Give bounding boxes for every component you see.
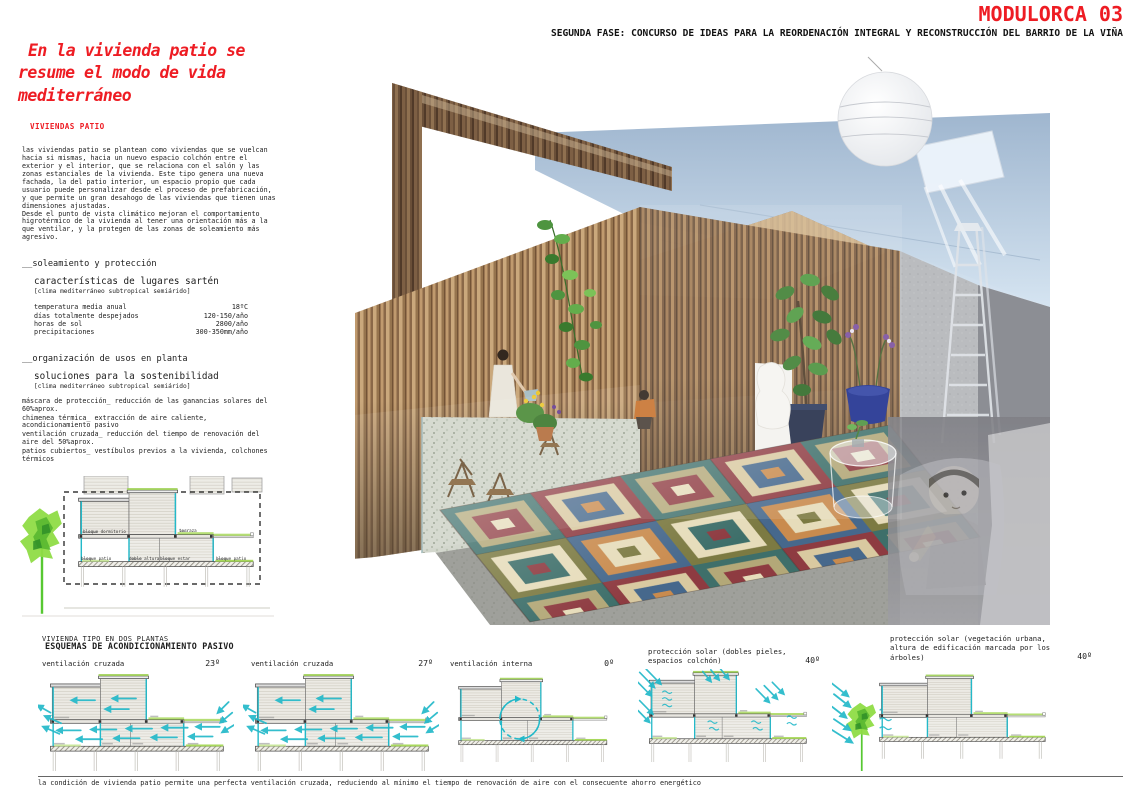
list-item: máscara de protección_ reducción de las …: [22, 398, 278, 414]
label-bloque-patio: bloque patio: [81, 556, 112, 561]
stat-row: temperatura media anual18ºC: [34, 303, 248, 311]
label-bloque-patio-2: bloque patio: [216, 556, 247, 561]
intro-paragraph-1: las viviendas patio se plantean como viv…: [22, 147, 276, 210]
list-item: chimenea térmica_ extracción de aire cal…: [22, 415, 278, 431]
scheme-diagram: [243, 672, 439, 771]
organizacion-subtitle: soluciones para la sostenibilidad: [34, 371, 288, 382]
scheme-proteccion-solar-vegetacion: protección solar (vegetación urbana, alt…: [832, 634, 1092, 771]
stat-value: 2800/año: [216, 320, 248, 328]
list-item: ventilación cruzada_ reducción del tiemp…: [22, 431, 278, 447]
section-diagram-svg: bloque dormitorio terraza bloque patio d…: [18, 476, 278, 626]
tree-icon: [846, 703, 876, 771]
soleamiento-title: __soleamiento y protección: [22, 259, 288, 269]
stat-label: horas de sol: [34, 320, 82, 328]
intro-paragraph-2: Desde el punto de vista climático mejora…: [22, 211, 276, 243]
building-section: [79, 488, 254, 587]
page-subtitle: SEGUNDA FASE: CONCURSO DE IDEAS PARA LA …: [551, 28, 1123, 39]
stat-label: temperatura media anual: [34, 303, 127, 311]
list-item: patios cubiertos_ vestíbulos previos a l…: [22, 448, 278, 464]
label-doble-altura: doble altura: [129, 556, 160, 561]
scheme-proteccion-solar-pieles: protección solar (dobles pieles, espacio…: [638, 647, 820, 762]
scheme-label: protección solar (dobles pieles, espacio…: [648, 647, 788, 666]
collage-svg: [340, 55, 1060, 625]
intro-paragraphs: las viviendas patio se plantean como viv…: [22, 147, 276, 242]
schemes-title: ESQUEMAS DE ACONDICIONAMIENTO PASIVO: [45, 641, 234, 651]
headline: En la vivienda patio se resume el modo d…: [18, 40, 288, 107]
soleamiento-subtitle: características de lugares sartén: [34, 276, 288, 287]
scheme-diagram: [448, 676, 616, 762]
scheme-label: ventilación cruzada: [42, 659, 124, 668]
stat-row: días totalmente despejados120-150/año: [34, 312, 248, 320]
section-diagram: bloque dormitorio terraza bloque patio d…: [18, 476, 288, 643]
label-bloque-estar: bloque estar: [160, 556, 191, 561]
stat-value: 18ºC: [232, 303, 248, 311]
scheme-angle: 0º: [604, 658, 614, 669]
scheme-label: ventilación interna: [450, 659, 532, 668]
schemes-footnote: la condición de vivienda patio permite u…: [38, 776, 1123, 787]
stat-value: 120-150/año: [204, 312, 248, 320]
scheme-angle: 40º: [1077, 651, 1092, 662]
scheme-diagram: [832, 671, 1080, 771]
label-terraza: terraza: [179, 528, 197, 533]
scheme-angle: 27º: [418, 658, 433, 669]
left-column: En la vivienda patio se resume el modo d…: [18, 40, 288, 643]
patio-photomontage: [340, 55, 1060, 625]
page-title: MODULORCA 03: [979, 2, 1124, 26]
climate-stats: temperatura media anual18ºC días totalme…: [34, 303, 248, 337]
organizacion-note: [clima mediterráneo subtropical semiárid…: [34, 383, 288, 390]
scheme-ventilacion-cruzada-23: ventilación cruzada23º: [38, 658, 234, 771]
scheme-diagram: [638, 669, 816, 762]
scheme-ventilacion-interna: ventilación interna0º: [448, 658, 616, 762]
stat-row: horas de sol2800/año: [34, 320, 248, 328]
sustainability-items: máscara de protección_ reducción de las …: [22, 398, 278, 464]
organizacion-title: __organización de usos en planta: [22, 354, 288, 364]
stat-label: precipitaciones: [34, 328, 94, 336]
scheme-ventilacion-cruzada-27: ventilación cruzada27º: [243, 658, 439, 771]
scheme-angle: 23º: [205, 658, 220, 669]
scheme-angle: 40º: [805, 655, 820, 666]
stat-label: días totalmente despejados: [34, 312, 139, 320]
scheme-label: ventilación cruzada: [251, 659, 333, 668]
tree-icon: [20, 508, 62, 614]
section-label: VIVIENDAS PATIO: [30, 122, 288, 131]
scheme-diagram: [38, 672, 234, 771]
competition-board: MODULORCA 03 SEGUNDA FASE: CONCURSO DE I…: [0, 0, 1131, 800]
label-bloque-dormitorio: bloque dormitorio: [83, 529, 126, 534]
stat-value: 300-350mm/año: [196, 328, 248, 336]
soleamiento-note: [clima mediterráneo subtropical semiárid…: [34, 288, 288, 295]
scheme-label: protección solar (vegetación urbana, alt…: [890, 634, 1058, 662]
stat-row: precipitaciones300-350mm/año: [34, 328, 248, 336]
